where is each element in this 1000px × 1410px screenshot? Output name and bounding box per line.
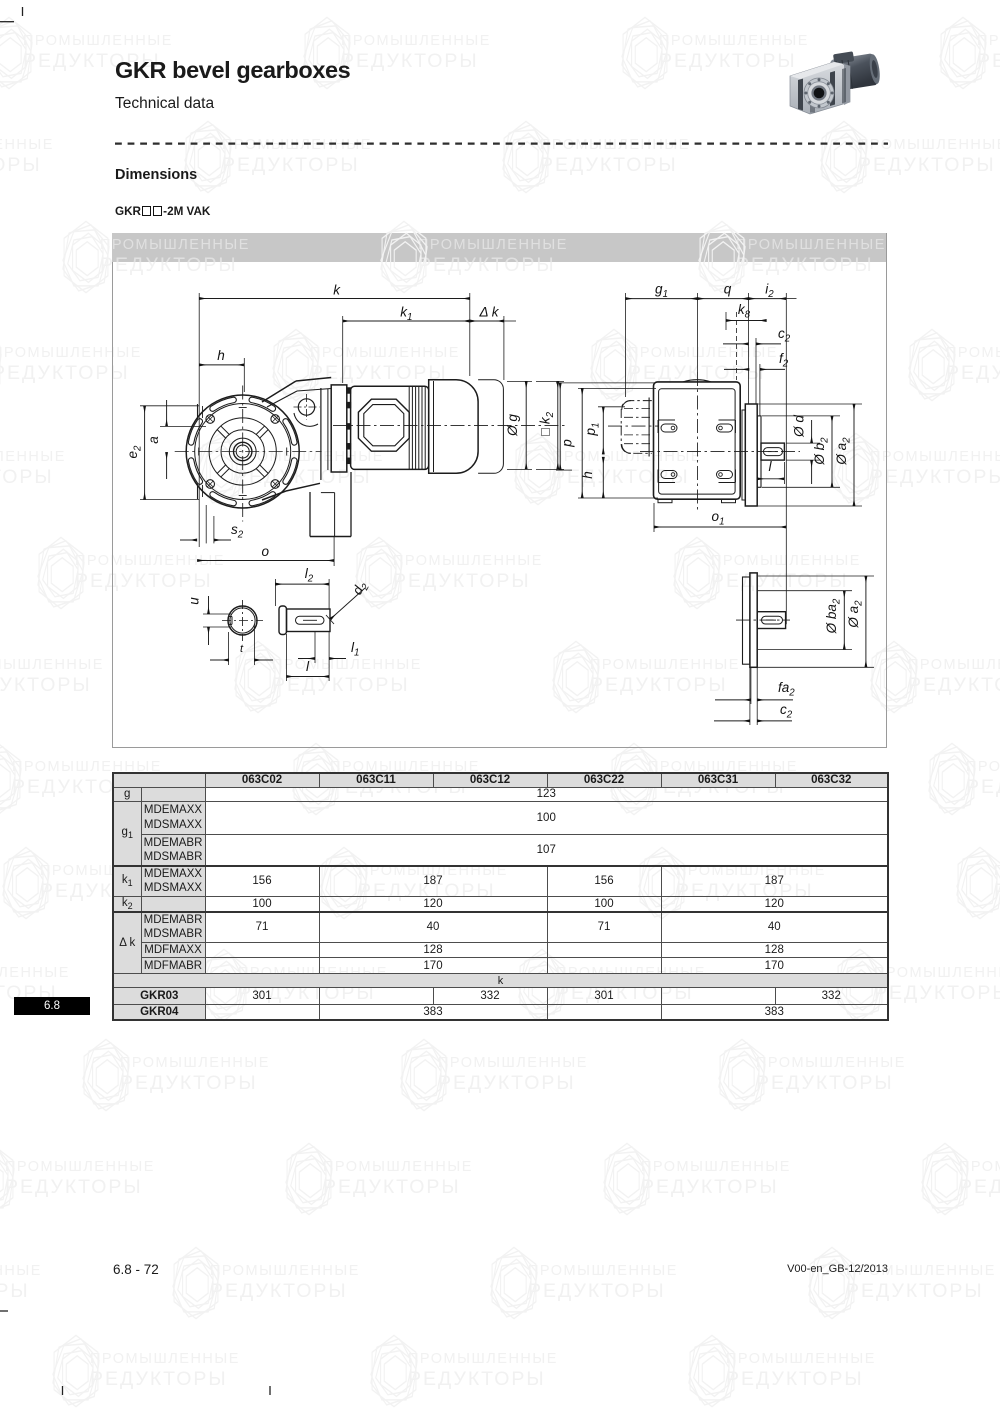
svg-text:Ø g: Ø g (505, 414, 520, 437)
svg-text:Ø a2: Ø a2 (846, 600, 865, 629)
svg-text:h: h (217, 348, 225, 363)
svg-text:f2: f2 (779, 351, 789, 370)
svg-text:k1: k1 (400, 305, 412, 324)
svg-text:c2: c2 (778, 326, 791, 345)
svg-text:k: k (333, 283, 341, 298)
svg-text:q: q (724, 282, 732, 297)
svg-text:o: o (261, 544, 269, 559)
svg-text:d2: d2 (349, 578, 372, 599)
svg-text:g1: g1 (655, 282, 668, 301)
svg-text:Ø a2: Ø a2 (834, 437, 853, 466)
svg-text:u: u (187, 597, 202, 605)
svg-text:t: t (240, 643, 244, 655)
svg-text:l2: l2 (305, 566, 314, 585)
svg-text:Ø d: Ø d (792, 415, 807, 438)
svg-text:l: l (769, 459, 773, 474)
svg-text:i2: i2 (765, 282, 774, 301)
svg-text:Ø ba2: Ø ba2 (824, 598, 843, 634)
svg-text:s2: s2 (231, 522, 244, 541)
svg-text:o1: o1 (712, 509, 725, 528)
svg-text:c2: c2 (780, 702, 793, 721)
svg-text:Δ k: Δ k (478, 305, 499, 320)
svg-text:□ k2: □ k2 (538, 411, 557, 436)
svg-text:h: h (580, 471, 595, 479)
svg-text:a: a (146, 436, 161, 444)
svg-text:Ø b2: Ø b2 (812, 437, 831, 466)
svg-text:e2: e2 (125, 445, 144, 459)
svg-text:l: l (306, 659, 310, 674)
svg-text:p: p (560, 439, 575, 448)
svg-text:p1: p1 (583, 423, 602, 437)
svg-text:fa2: fa2 (778, 680, 795, 699)
svg-text:l1: l1 (351, 640, 359, 659)
